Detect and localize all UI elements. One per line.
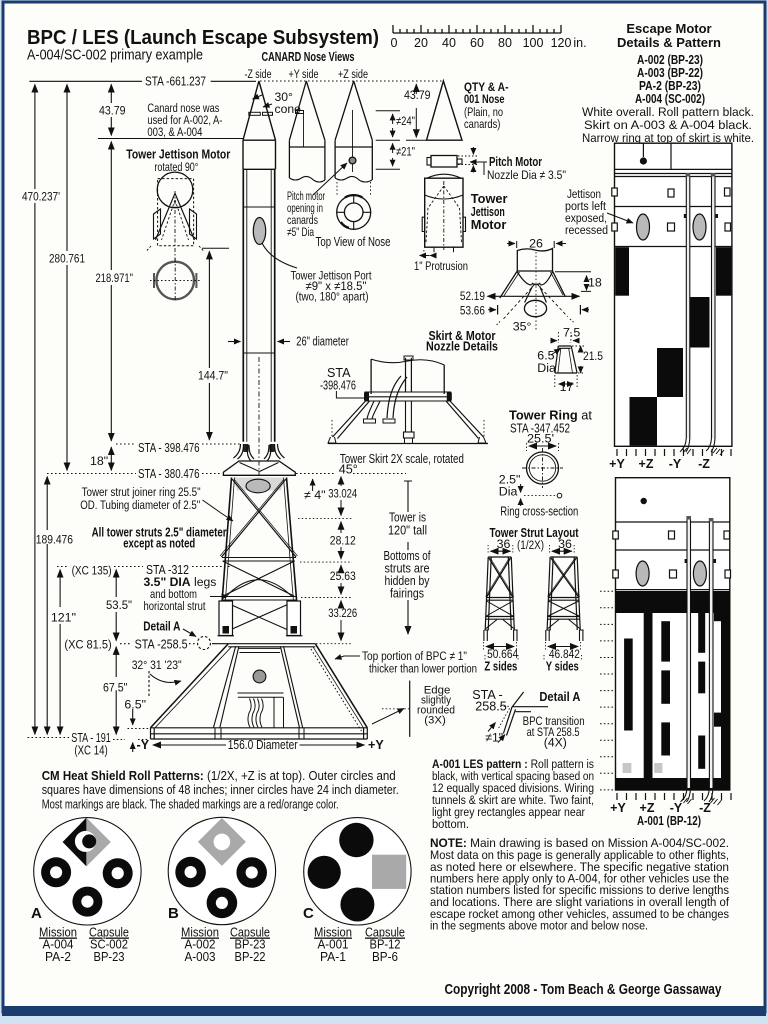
svg-text:CANARD Nose Views: CANARD Nose Views bbox=[262, 49, 355, 64]
svg-text:≠21": ≠21" bbox=[396, 145, 415, 159]
svg-text:156.0 Diameter: 156.0 Diameter bbox=[228, 738, 298, 752]
svg-text:in the segments above motor: in the segments above motor and below no… bbox=[430, 919, 648, 933]
svg-text:horizontal strut: horizontal strut bbox=[144, 599, 206, 613]
svg-text:25.63: 25.63 bbox=[330, 569, 356, 583]
svg-text:bottom.: bottom. bbox=[432, 817, 469, 831]
svg-text:+Y: +Y bbox=[610, 801, 626, 815]
svg-text:Ring cross-section: Ring cross-section bbox=[500, 505, 578, 519]
svg-text:60: 60 bbox=[470, 36, 484, 50]
svg-text:OD. Tubing diameter of 2.5": OD. Tubing diameter of 2.5" bbox=[80, 498, 200, 512]
svg-text:CM Heat Shield Roll Patter: CM Heat Shield Roll Patterns: (1/2X, +Z … bbox=[42, 768, 396, 783]
svg-text:≠5" Dia: ≠5" Dia bbox=[287, 225, 314, 239]
svg-text:17: 17 bbox=[560, 380, 574, 394]
svg-text:120" tall: 120" tall bbox=[388, 524, 427, 538]
svg-text:Detail A: Detail A bbox=[143, 619, 180, 634]
svg-text:thicker than lower portion: thicker than lower portion bbox=[369, 662, 477, 676]
svg-text:-Z: -Z bbox=[698, 457, 710, 471]
svg-text:45°: 45° bbox=[339, 463, 358, 477]
svg-text:218.971": 218.971" bbox=[96, 271, 134, 285]
svg-text:Tower Ring at: Tower Ring at bbox=[509, 408, 592, 423]
svg-text:35°: 35° bbox=[513, 320, 532, 334]
svg-text:STA - 398.476: STA - 398.476 bbox=[138, 441, 200, 455]
svg-text:28.12: 28.12 bbox=[330, 533, 356, 547]
svg-text:Dia: Dia bbox=[537, 361, 556, 375]
svg-text:26" diameter: 26" diameter bbox=[296, 335, 349, 349]
svg-text:001 Nose: 001 Nose bbox=[464, 92, 505, 106]
svg-text:33.024: 33.024 bbox=[328, 486, 357, 500]
svg-text:Z sides: Z sides bbox=[484, 659, 517, 674]
svg-text:Y sides: Y sides bbox=[546, 659, 579, 674]
svg-text:PA-1: PA-1 bbox=[320, 949, 346, 964]
svg-text:120: 120 bbox=[551, 36, 572, 50]
svg-text:32° 31 '23": 32° 31 '23" bbox=[132, 658, 182, 672]
svg-text:Skirt on A-003 & A-004 bl: Skirt on A-003 & A-004 black. bbox=[584, 118, 752, 132]
svg-text:Copyright 2008 - Tom Beach &: Copyright 2008 - Tom Beach & George Gass… bbox=[445, 981, 722, 998]
svg-text:Tower strut joiner ring 25.5": Tower strut joiner ring 25.5" bbox=[82, 485, 201, 499]
svg-text:121": 121" bbox=[51, 611, 76, 625]
svg-text:BP-22: BP-22 bbox=[235, 949, 266, 964]
svg-text:Details & Pattern: Details & Pattern bbox=[617, 35, 721, 50]
svg-text:≠1": ≠1" bbox=[485, 731, 503, 745]
svg-text:A-004 (SC-002): A-004 (SC-002) bbox=[635, 91, 705, 106]
svg-text:B: B bbox=[168, 905, 179, 922]
svg-text:(1/2X): (1/2X) bbox=[517, 538, 544, 552]
svg-text:in.: in. bbox=[573, 36, 586, 50]
svg-text:Tower is: Tower is bbox=[389, 511, 426, 525]
svg-text:PA-2: PA-2 bbox=[45, 949, 71, 964]
svg-text:A-004/SC-002 primary example: A-004/SC-002 primary example bbox=[27, 48, 203, 64]
svg-text:53.66: 53.66 bbox=[460, 303, 485, 317]
svg-text:+Y: +Y bbox=[368, 738, 384, 752]
svg-text:18": 18" bbox=[90, 454, 108, 468]
svg-text:BP-6: BP-6 bbox=[372, 949, 398, 964]
svg-text:280.761: 280.761 bbox=[49, 252, 85, 266]
svg-text:A-003: A-003 bbox=[185, 949, 216, 964]
svg-text:(XC 14): (XC 14) bbox=[74, 744, 107, 758]
svg-text:Top View of Nose: Top View of Nose bbox=[316, 235, 391, 249]
svg-text:6.5": 6.5" bbox=[124, 698, 146, 712]
svg-text:-398.476: -398.476 bbox=[320, 379, 356, 393]
svg-text:A: A bbox=[31, 905, 42, 922]
svg-text:Nozzle Details: Nozzle Details bbox=[426, 339, 498, 354]
svg-text:BPC / LES (Launch Escape Subsy: BPC / LES (Launch Escape Subsystem) bbox=[27, 26, 379, 49]
svg-text:+Y side: +Y side bbox=[289, 67, 319, 81]
svg-text:003, & A-004: 003, & A-004 bbox=[147, 125, 202, 139]
svg-text:(XC 135): (XC 135) bbox=[72, 564, 112, 578]
svg-text:Motor: Motor bbox=[471, 217, 507, 232]
svg-text:Dia: Dia bbox=[499, 485, 518, 499]
svg-text:(3X): (3X) bbox=[424, 715, 446, 727]
svg-text:67.5": 67.5" bbox=[103, 681, 127, 695]
svg-text:53.5": 53.5" bbox=[106, 598, 132, 612]
svg-text:≠ 4": ≠ 4" bbox=[304, 488, 326, 502]
svg-text:STA - 380.476: STA - 380.476 bbox=[138, 467, 200, 481]
svg-text:BP-23: BP-23 bbox=[94, 949, 125, 964]
svg-text:except as noted: except as noted bbox=[123, 537, 195, 551]
svg-text:52.19: 52.19 bbox=[460, 289, 485, 303]
svg-text:43.79: 43.79 bbox=[404, 88, 431, 102]
svg-text:(4X): (4X) bbox=[544, 736, 567, 750]
svg-text:33.226: 33.226 bbox=[328, 606, 357, 620]
svg-text:26: 26 bbox=[529, 237, 543, 251]
svg-text:+Z: +Z bbox=[639, 457, 654, 471]
svg-text:144.7": 144.7" bbox=[198, 369, 228, 383]
svg-text:7.5: 7.5 bbox=[563, 326, 580, 340]
svg-text:squares have dimensions of 48: squares have dimensions of 48 inches; in… bbox=[42, 782, 399, 797]
svg-text:STA -258.5: STA -258.5 bbox=[135, 638, 188, 652]
svg-text:(XC 81.5): (XC 81.5) bbox=[64, 638, 111, 652]
svg-text:-Y: -Y bbox=[669, 457, 682, 471]
svg-text:+Z side: +Z side bbox=[338, 67, 368, 81]
svg-text:recessed: recessed bbox=[565, 223, 608, 237]
svg-text:-Z side: -Z side bbox=[245, 67, 272, 81]
svg-text:20: 20 bbox=[414, 36, 428, 50]
svg-text:470.237': 470.237' bbox=[22, 190, 60, 204]
svg-text:1" Protrusion: 1" Protrusion bbox=[414, 259, 468, 273]
svg-text:≠24": ≠24" bbox=[396, 114, 415, 128]
svg-text:Escape Motor: Escape Motor bbox=[626, 21, 711, 36]
svg-text:Most markings are black. Th: Most markings are black. The shaded mark… bbox=[42, 797, 339, 812]
svg-text:43.79: 43.79 bbox=[99, 104, 126, 118]
svg-text:36: 36 bbox=[558, 537, 572, 551]
svg-text:Detail A: Detail A bbox=[539, 689, 580, 704]
svg-text:18: 18 bbox=[588, 276, 602, 290]
svg-text:0: 0 bbox=[391, 36, 398, 50]
svg-text:21.5: 21.5 bbox=[583, 349, 603, 363]
svg-text:189.476: 189.476 bbox=[36, 533, 73, 547]
svg-text:(two, 180° apart): (two, 180° apart) bbox=[296, 290, 369, 304]
svg-text:White overall. Roll pattern: White overall. Roll pattern black. bbox=[582, 105, 754, 119]
svg-text:-Y: -Y bbox=[137, 738, 150, 752]
svg-text:Pitch Motor: Pitch Motor bbox=[489, 154, 542, 169]
svg-text:Tower Skirt 2X scale, rotate: Tower Skirt 2X scale, rotated bbox=[340, 452, 464, 466]
svg-text:A-001 (BP-12): A-001 (BP-12) bbox=[637, 813, 701, 828]
svg-text:canards): canards) bbox=[464, 117, 500, 131]
svg-text:Nozzle Dia ≠ 3.5": Nozzle Dia ≠ 3.5" bbox=[487, 168, 566, 182]
svg-text:40: 40 bbox=[442, 36, 456, 50]
svg-text:STA -661.237: STA -661.237 bbox=[145, 75, 206, 89]
svg-text:C: C bbox=[303, 905, 314, 922]
svg-text:80: 80 bbox=[498, 36, 512, 50]
svg-text:100: 100 bbox=[523, 36, 544, 50]
svg-text:25.5': 25.5' bbox=[527, 432, 554, 446]
svg-text:fairings: fairings bbox=[390, 587, 424, 601]
svg-text:36: 36 bbox=[497, 537, 511, 551]
svg-text:+Y: +Y bbox=[609, 457, 625, 471]
svg-text:258.5: 258.5 bbox=[475, 700, 507, 714]
